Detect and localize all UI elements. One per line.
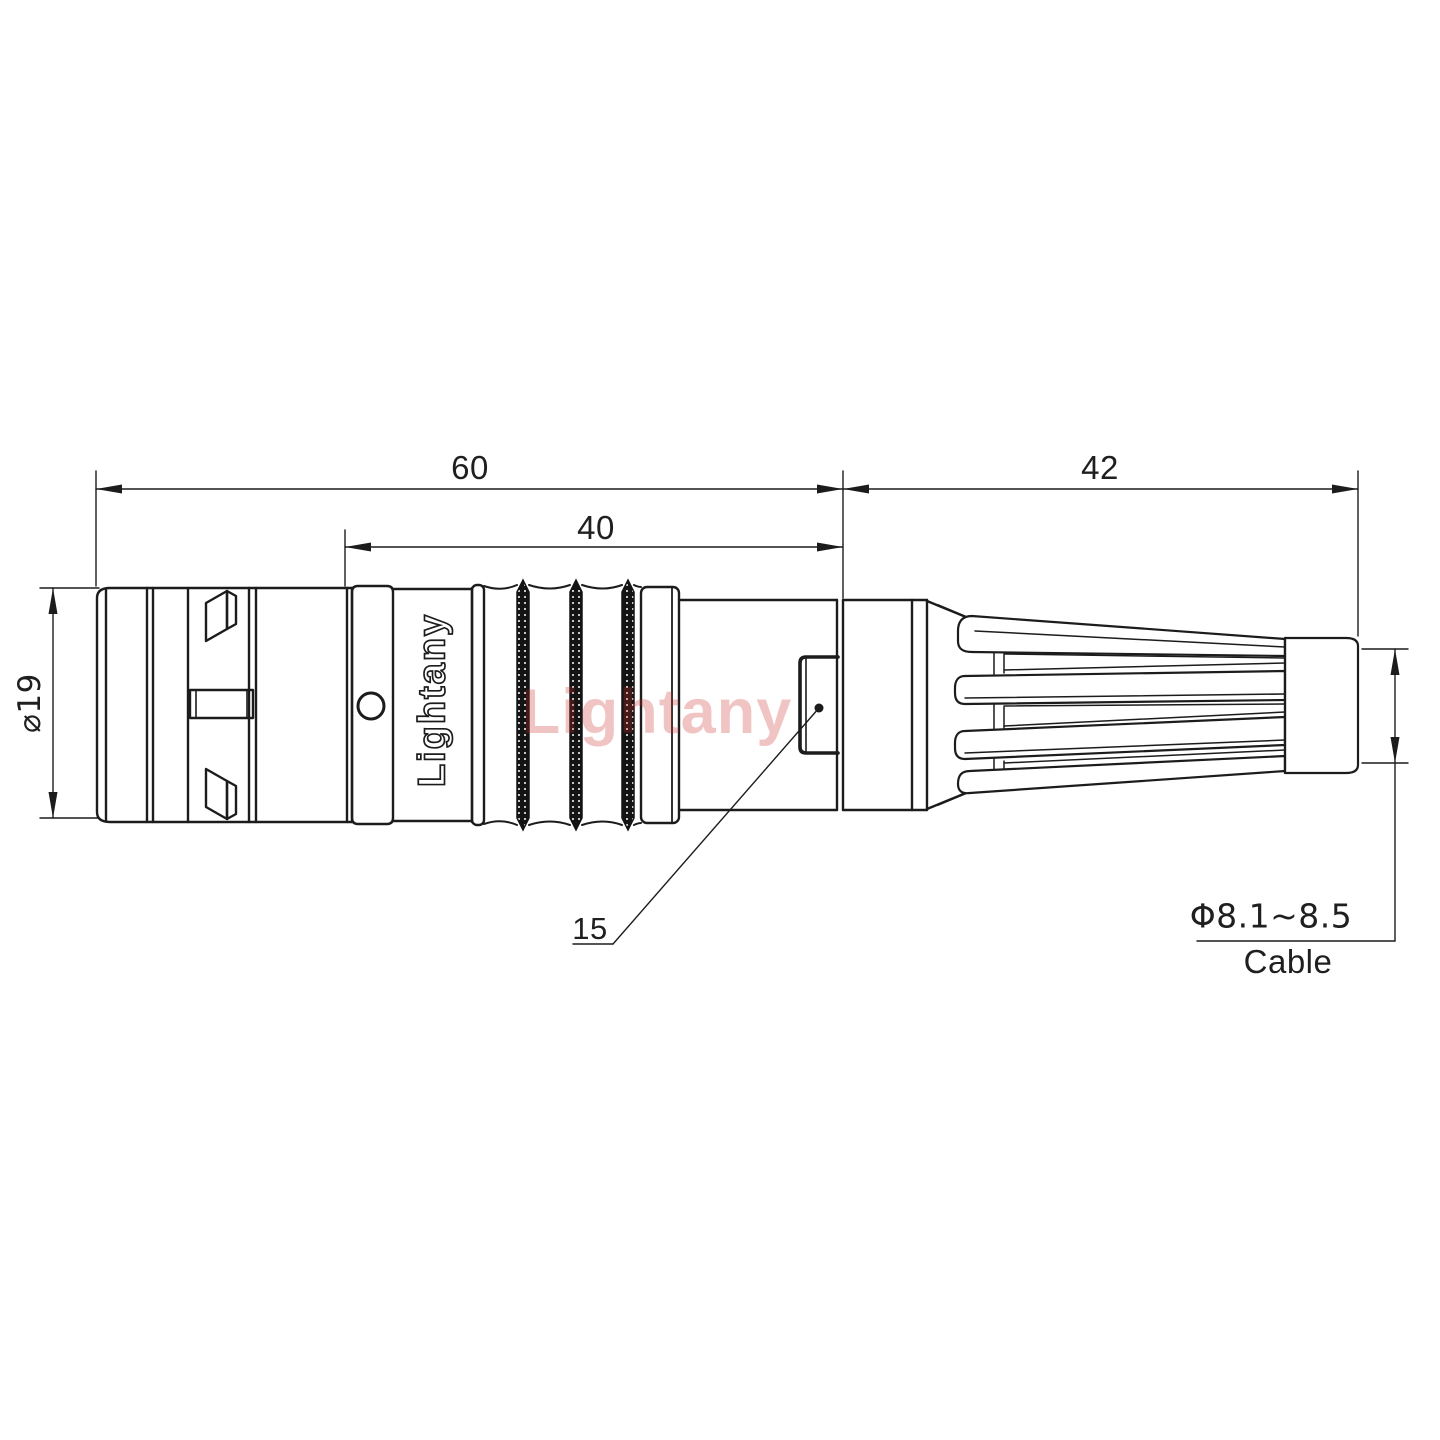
dimension-60-label: 60 bbox=[451, 449, 489, 487]
strain-relief-fins bbox=[955, 616, 1358, 793]
technical-drawing-canvas: 60 40 42 ⌀19 15 Φ8.1~8.5 Cable Lightany … bbox=[0, 0, 1440, 1440]
diameter-19-label: ⌀19 bbox=[12, 673, 48, 733]
body-brand-text: Lightany bbox=[412, 613, 455, 787]
dimension-42-label: 42 bbox=[1081, 449, 1119, 487]
cable-text-label: Cable bbox=[1244, 943, 1333, 981]
watermark-text: Lightany bbox=[522, 676, 793, 748]
dimension-40-label: 40 bbox=[577, 509, 615, 547]
callout-15-label: 15 bbox=[572, 911, 607, 947]
cable-diameter-label: Φ8.1~8.5 bbox=[1190, 897, 1353, 936]
